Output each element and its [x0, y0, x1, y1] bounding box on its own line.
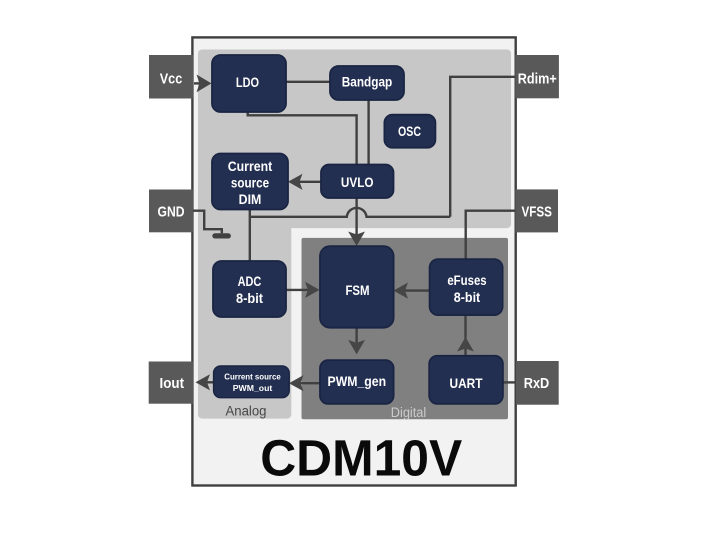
svg-text:Digital: Digital: [391, 405, 427, 420]
svg-text:OSC: OSC: [398, 123, 421, 139]
svg-text:Iout: Iout: [160, 375, 185, 392]
svg-text:RxD: RxD: [524, 375, 550, 392]
svg-text:GND: GND: [158, 204, 185, 221]
svg-text:eFuses: eFuses: [447, 272, 486, 288]
svg-text:Analog: Analog: [226, 404, 267, 419]
svg-text:FSM: FSM: [345, 282, 369, 298]
svg-text:DIM: DIM: [239, 191, 262, 207]
svg-text:UART: UART: [450, 375, 483, 391]
svg-text:8-bit: 8-bit: [454, 289, 481, 305]
svg-text:Current source: Current source: [224, 372, 281, 381]
svg-text:PWM_gen: PWM_gen: [328, 373, 387, 389]
svg-text:source: source: [231, 174, 269, 190]
svg-text:8-bit: 8-bit: [236, 290, 263, 306]
svg-text:UVLO: UVLO: [341, 174, 374, 190]
svg-text:ADC: ADC: [238, 273, 262, 289]
svg-text:PWM_out: PWM_out: [233, 384, 273, 393]
svg-text:Vcc: Vcc: [160, 71, 183, 88]
svg-text:LDO: LDO: [236, 74, 259, 90]
svg-text:CDM10V: CDM10V: [260, 430, 462, 487]
svg-text:Current: Current: [228, 158, 273, 174]
svg-text:Rdim+: Rdim+: [518, 71, 557, 88]
svg-text:VFSS: VFSS: [521, 204, 552, 221]
svg-text:Bandgap: Bandgap: [342, 74, 393, 90]
